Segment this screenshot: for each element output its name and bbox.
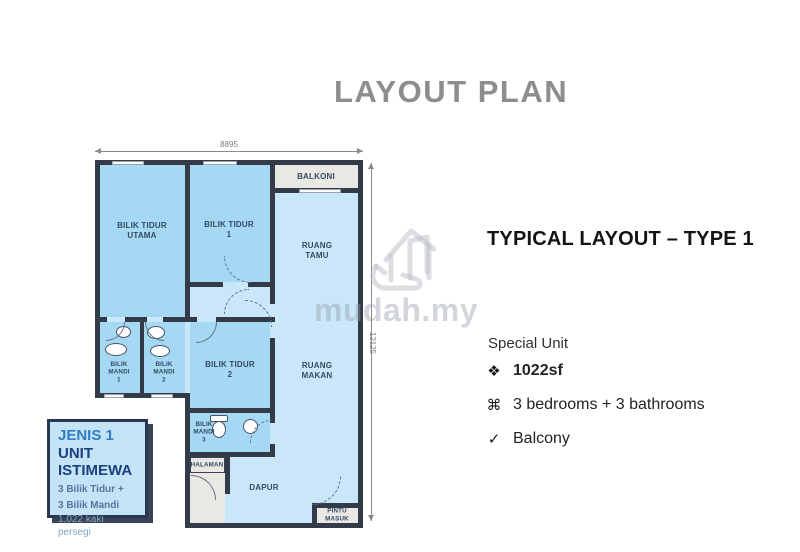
sink-fixture bbox=[150, 345, 170, 357]
wall bbox=[312, 503, 317, 528]
room-label-bilik-mandi-1: BILIK MANDI 1 bbox=[108, 360, 129, 383]
unit-type-label: JENIS 1 bbox=[58, 427, 137, 445]
dimension-width: 8895 bbox=[220, 140, 238, 149]
typical-layout-heading: TYPICAL LAYOUT – TYPE 1 bbox=[487, 228, 754, 251]
mudah-house-hand-icon bbox=[358, 216, 450, 300]
arrowhead bbox=[357, 148, 363, 154]
room-label-bilik-tidur-2: BILIK TIDUR 2 bbox=[205, 360, 255, 380]
wall bbox=[270, 282, 275, 304]
diamond-icon: ❖ bbox=[485, 362, 503, 380]
room-label-halaman: HALAMAN bbox=[191, 461, 224, 469]
unit-info-box: JENIS 1 UNIT ISTIMEWA 3 Bilik Tidur + 3 … bbox=[47, 419, 148, 518]
wall bbox=[185, 282, 223, 287]
layout-plan-image: LAYOUT PLAN bbox=[0, 0, 800, 552]
window bbox=[203, 161, 237, 165]
room-label-ruang-makan: RUANG MAKAN bbox=[302, 361, 333, 381]
room-label-balkoni: BALKONI bbox=[297, 172, 335, 182]
dimension-height: 12125 bbox=[368, 332, 377, 354]
wall bbox=[95, 160, 100, 398]
detail-rooms: ⌘ 3 bedrooms + 3 bathrooms bbox=[485, 396, 705, 414]
wall bbox=[140, 322, 144, 393]
window bbox=[112, 161, 144, 165]
room-bilik-tidur-utama bbox=[100, 165, 187, 317]
sliding-door bbox=[299, 189, 341, 193]
sink-fixture bbox=[105, 343, 127, 356]
detail-area-value: 1022sf bbox=[513, 362, 563, 380]
unit-bedrooms-label: 3 Bilik Tidur + bbox=[58, 483, 137, 497]
unit-area-label: 1,022 kaki persegi bbox=[58, 513, 137, 540]
room-label-bilik-tidur-1: BILIK TIDUR 1 bbox=[204, 220, 254, 240]
room-label-pintu-masuk: PINTU MASUK bbox=[325, 507, 349, 523]
detail-area: ❖ 1022sf bbox=[485, 362, 563, 380]
room-label-ruang-tamu: RUANG TAMU bbox=[302, 241, 332, 261]
room-label-dapur: DAPUR bbox=[249, 483, 278, 493]
arrowhead bbox=[368, 163, 374, 169]
wall bbox=[270, 160, 275, 282]
page-title: LAYOUT PLAN bbox=[334, 74, 568, 110]
unit-name-line-1: UNIT bbox=[58, 445, 137, 462]
check-icon: ✓ bbox=[485, 430, 503, 448]
wall bbox=[185, 523, 363, 528]
detail-balcony: ✓ Balcony bbox=[485, 430, 570, 448]
special-unit-label: Special Unit bbox=[488, 335, 568, 352]
wall bbox=[185, 408, 275, 413]
window bbox=[104, 394, 124, 398]
arrowhead bbox=[368, 515, 374, 521]
command-icon: ⌘ bbox=[485, 396, 503, 414]
wall bbox=[225, 457, 230, 494]
dimension-line-horizontal bbox=[95, 151, 363, 152]
room-label-bilik-tidur-utama: BILIK TIDUR UTAMA bbox=[117, 221, 167, 241]
room-label-bilik-mandi-3: BILIK MANDI 3 bbox=[193, 420, 214, 443]
wall bbox=[270, 338, 275, 413]
window bbox=[151, 394, 173, 398]
room-label-bilik-mandi-2: BILIK MANDI 2 bbox=[153, 360, 174, 383]
detail-balcony-value: Balcony bbox=[513, 430, 570, 448]
detail-rooms-value: 3 bedrooms + 3 bathrooms bbox=[513, 396, 705, 414]
wall bbox=[185, 160, 190, 322]
wall bbox=[163, 317, 197, 322]
arrowhead bbox=[95, 148, 101, 154]
watermark-text: mudah.my bbox=[314, 292, 478, 329]
unit-name-line-2: ISTIMEWA bbox=[58, 462, 137, 479]
unit-bathrooms-label: 3 Bilik Mandi bbox=[58, 499, 137, 513]
